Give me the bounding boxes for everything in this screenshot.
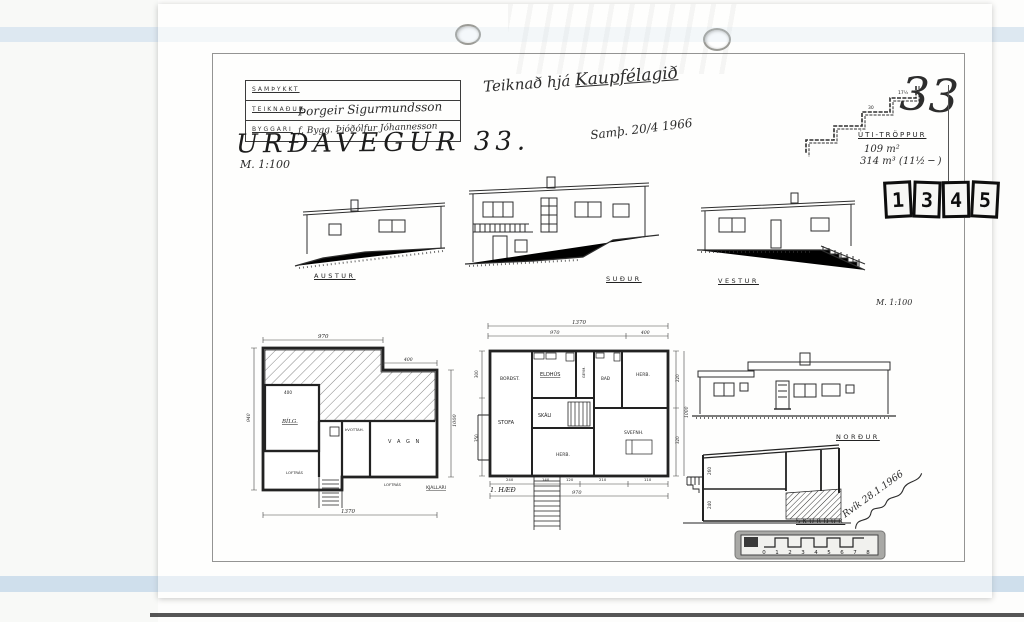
basement-floor-plan: 970 400 1370 1000 940 400 BÍLG. ÞVOTTAH.… <box>246 330 471 532</box>
volume-note: 314 m³ (11½ ─ ) <box>860 156 942 167</box>
scale-tick: 2 <box>788 550 792 556</box>
dim-top-left: 970 <box>550 330 560 336</box>
plot-number: 33 <box>898 70 960 120</box>
title-block-row: SAMÞYKKT <box>246 81 460 101</box>
dim-top-right: 400 <box>640 330 650 336</box>
scale-tick: 8 <box>866 550 870 556</box>
dim-right-top: 400 <box>403 357 413 363</box>
binder-hole <box>455 24 481 45</box>
dim-left-a: 300 <box>474 370 479 378</box>
scanner-left-margin <box>0 0 158 622</box>
stamp-digit: 4 <box>942 181 971 218</box>
room-label: GEYM. <box>582 367 586 379</box>
dim-bottom: 1370 <box>341 509 355 515</box>
south-elevation-label: SUÐUR <box>606 275 642 283</box>
east-elevation-label: AUSTUR <box>314 272 356 280</box>
drawing-sheet: SAMÞYKKT TEIKNAÐUR Þorgeir Sigurmundsson… <box>158 4 992 598</box>
section-label: SKURÐUR <box>796 517 845 525</box>
east-elevation-drawing <box>293 188 458 283</box>
section-dim: 260 <box>707 467 712 475</box>
scale-tick: 7 <box>853 550 857 556</box>
section-dim: 240 <box>707 501 712 509</box>
north-elevation-drawing <box>690 350 902 442</box>
room-label: HERB. <box>636 372 650 378</box>
dim-seg: 240 <box>506 477 514 482</box>
scan-edge-line <box>150 613 1024 617</box>
scale-tick: 3 <box>801 550 805 556</box>
dim-seg: 120 <box>566 477 574 482</box>
scale-note-right: M. 1:100 <box>876 298 912 307</box>
room-label: ELDHÚS <box>540 371 560 378</box>
scale-tick: 4 <box>814 550 818 556</box>
scale-note-left: M. 1:100 <box>240 158 290 171</box>
west-elevation-drawing <box>693 188 873 285</box>
main-plan-label: 1. HÆÐ <box>490 486 516 494</box>
vent-note: LOFTRÁS <box>286 470 303 475</box>
scale-tick: 1 <box>775 550 779 556</box>
dim-top: 970 <box>318 334 329 340</box>
scale-tick: 6 <box>840 550 844 556</box>
scale-tick: 5 <box>827 550 831 556</box>
stamp-digit: 1 <box>883 180 913 218</box>
outdoor-stairs-label: ÚTI-TRÖPPUR <box>858 131 926 139</box>
page-title: URÐAVEGUR 33. <box>236 126 530 159</box>
frame-divider-line <box>948 85 949 184</box>
dim-bottom-total: 970 <box>572 490 582 496</box>
dim-seg: 110 <box>644 477 652 482</box>
south-elevation-drawing <box>463 174 663 284</box>
west-elevation-label: VESTUR <box>718 277 759 285</box>
room-label-garage: BÍLG. <box>281 417 298 425</box>
dim-right: 1000 <box>452 413 458 427</box>
room-label: BAÐ <box>601 376 610 381</box>
room-label: SVEFNH. <box>624 430 643 436</box>
number-stamp: 1 3 4 5 <box>884 181 999 218</box>
vent-note: LOFTRÁS <box>384 482 401 487</box>
room-label-storage: V A G N <box>388 439 421 445</box>
binder-hole <box>703 28 731 51</box>
room-label: SKÁLI <box>538 412 551 419</box>
scale-tick: 0 <box>762 550 766 556</box>
approved-label: SAMÞYKKT <box>252 86 300 93</box>
stair-dim: 30 <box>868 105 874 111</box>
north-elevation-label: NORÐUR <box>836 433 880 441</box>
basement-plan-label: KJALLARI <box>426 485 446 491</box>
dim-seg: 210 <box>599 477 607 482</box>
stamp-digit: 3 <box>912 181 941 219</box>
area-note: 109 m² <box>864 144 900 155</box>
room-label: BORÐST. <box>500 376 520 382</box>
dim-garage: 400 <box>284 390 292 395</box>
dim-right-b: 320 <box>675 436 680 444</box>
room-label-laundry: ÞVOTTAH. <box>345 427 364 432</box>
main-floor-plan: 1370 970 400 240 140 120 210 110 970 220… <box>476 320 691 540</box>
dim-left: 940 <box>246 413 252 422</box>
title-block-row: TEIKNAÐUR Þorgeir Sigurmundsson <box>246 101 460 121</box>
stamp-digit: 5 <box>970 180 1000 218</box>
room-label: HERB. <box>556 452 570 458</box>
room-label: STOFA <box>498 420 515 426</box>
dim-left-b: 350 <box>474 434 479 442</box>
dim-right-a: 220 <box>675 374 680 382</box>
dim-seg: 140 <box>542 477 550 482</box>
scanned-architectural-drawing: SAMÞYKKT TEIKNAÐUR Þorgeir Sigurmundsson… <box>0 0 1024 622</box>
signature-block: Rvík 28.1.1966 <box>856 472 1024 548</box>
dim-total-top: 1370 <box>572 320 586 326</box>
architect-signature: Þorgeir Sigurmundsson <box>298 99 443 118</box>
